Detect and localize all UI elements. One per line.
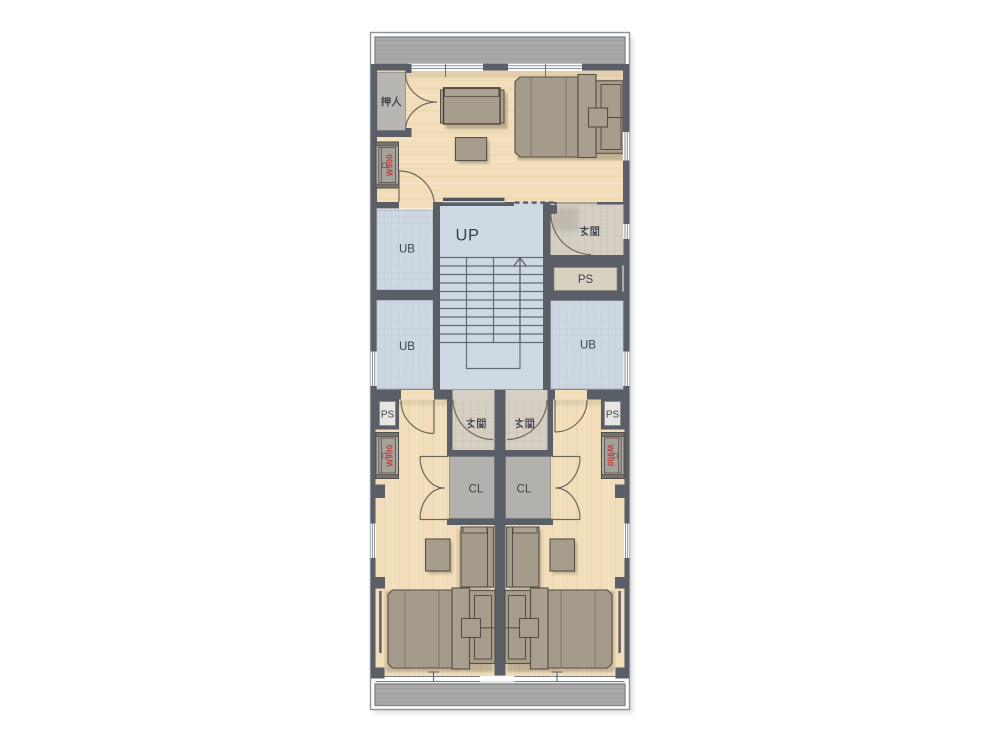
svg-text:CL: CL bbox=[517, 484, 532, 496]
svg-text:UB: UB bbox=[580, 340, 596, 352]
svg-text:UB: UB bbox=[399, 341, 415, 353]
svg-text:UP: UP bbox=[456, 227, 480, 245]
svg-text:W900: W900 bbox=[386, 154, 395, 176]
svg-text:PS: PS bbox=[606, 410, 620, 421]
svg-text:W900: W900 bbox=[386, 444, 395, 466]
svg-text:PS: PS bbox=[381, 410, 395, 421]
svg-text:PS: PS bbox=[578, 274, 594, 286]
svg-text:UB: UB bbox=[399, 244, 415, 256]
svg-text:W900: W900 bbox=[605, 444, 614, 466]
svg-text:CL: CL bbox=[469, 484, 484, 496]
